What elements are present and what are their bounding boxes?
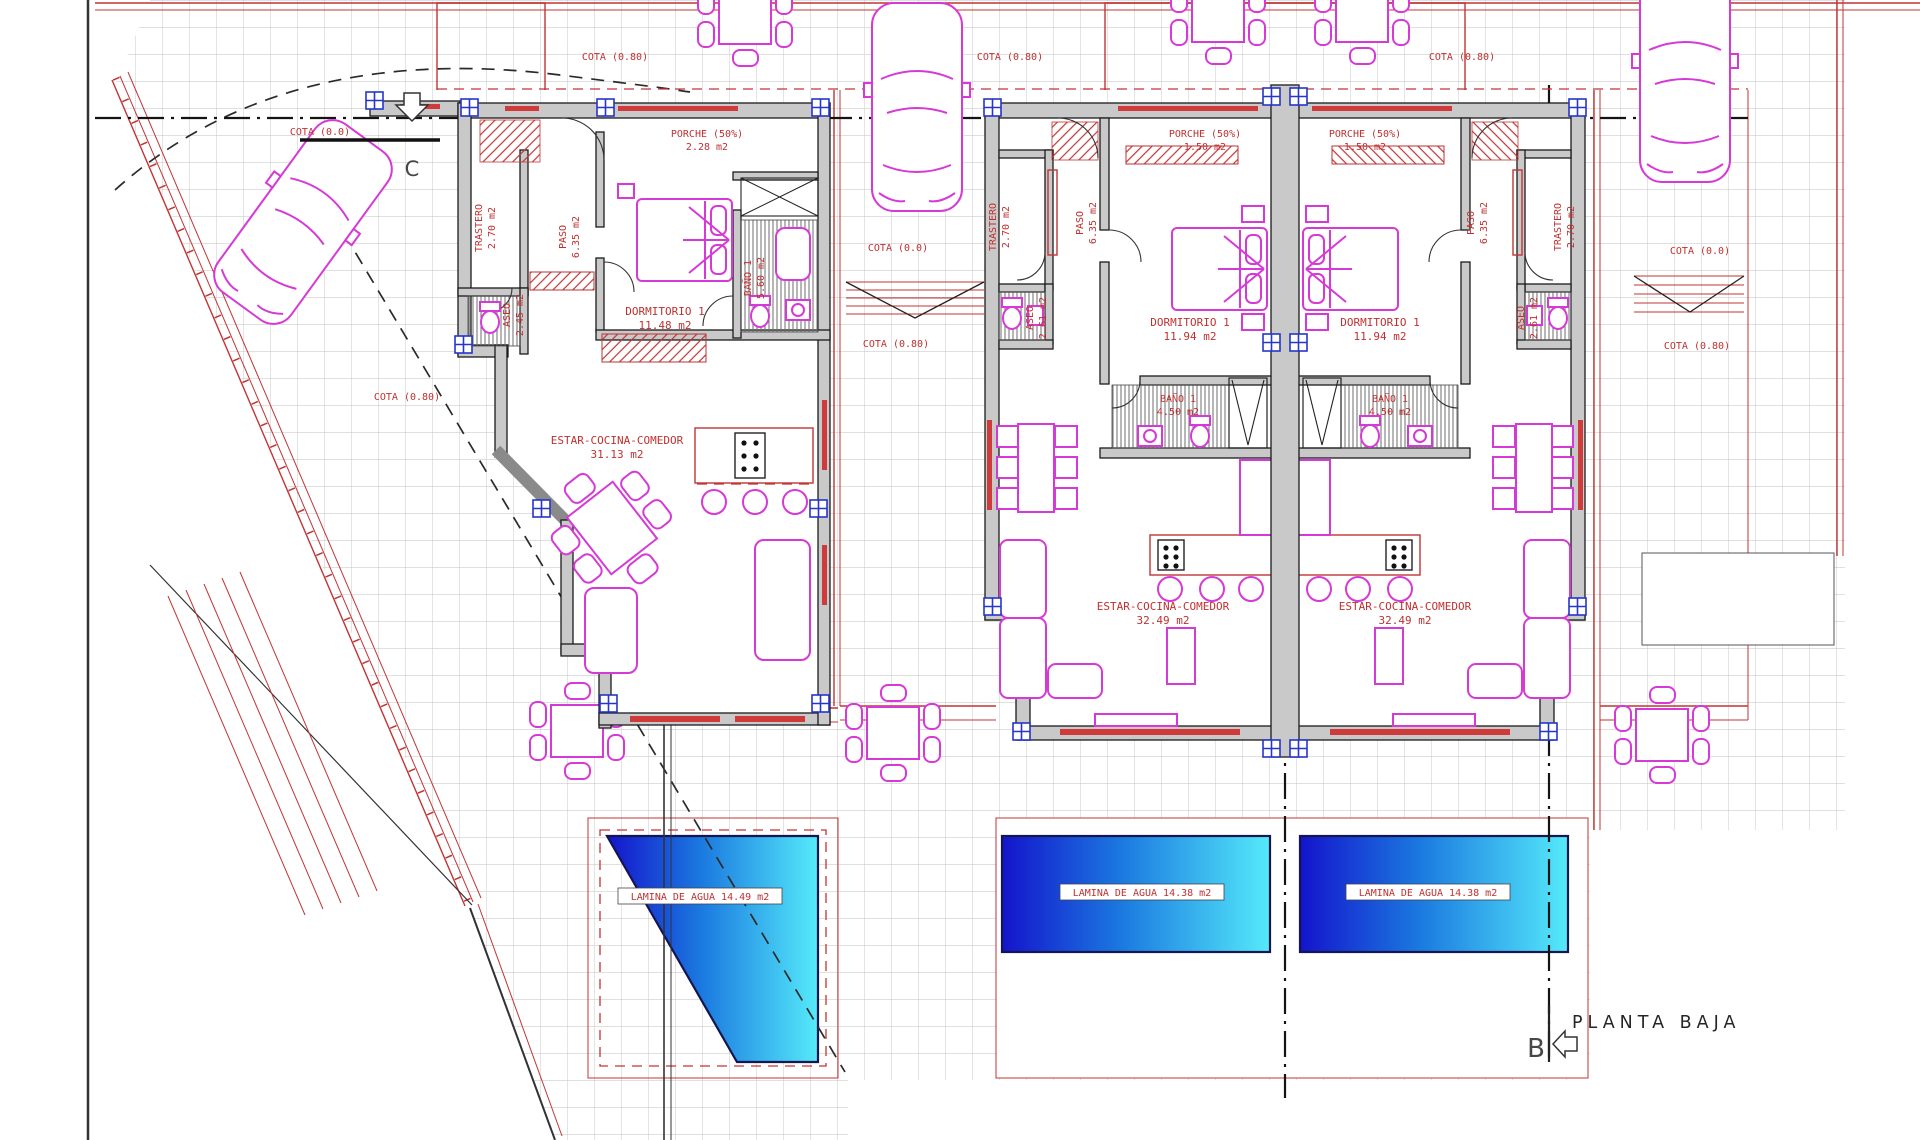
room-dormitorio-2-area: 11.94 m2 (1164, 330, 1217, 343)
room-dormitorio-2: DORMITORIO 1 (1150, 316, 1229, 329)
pool-label-2: LAMINA DE AGUA 14.38 m2 (1060, 884, 1224, 900)
room-estar-3-area: 32.49 m2 (1379, 614, 1432, 627)
room-bano-2-area: 4.50 m2 (1157, 407, 1199, 418)
bano-toilet (750, 296, 770, 327)
section-letter-c: C (405, 157, 420, 181)
svg-text:LAMINA DE AGUA 14.49 m2: LAMINA DE AGUA 14.49 m2 (631, 892, 769, 903)
wardrobe (602, 334, 706, 362)
cota-left-garden: COTA (0.80) (374, 392, 440, 403)
porche-label-1: PORCHE (50%) (671, 129, 743, 140)
aseo-toilet (480, 302, 500, 333)
plan-title: PLANTA BAJA (1572, 1013, 1740, 1033)
room-estar-2: ESTAR-COCINA-COMEDOR (1097, 600, 1230, 613)
room-paso-3-area: 6.35 m2 (1479, 202, 1490, 244)
room-bano-1-area: 5.60 m2 (756, 257, 767, 299)
room-trastero-1: TRASTERO (474, 204, 485, 252)
pool-label-3: LAMINA DE AGUA 14.38 m2 (1346, 884, 1510, 900)
room-aseo-2-area: 2.61 m2 (1038, 297, 1049, 339)
sofa-2 (585, 588, 637, 673)
cota-left-street: COTA (0.0) (290, 127, 350, 138)
room-trastero-1-area: 2.70 m2 (487, 207, 498, 249)
room-paso-2: PASO (1075, 211, 1086, 235)
room-bano-1: BAÑO 1 (741, 260, 754, 296)
room-bano-3: BAÑO 1 (1372, 392, 1408, 405)
sofa (755, 540, 810, 660)
room-trastero-2: TRASTERO (988, 203, 999, 251)
pool-label-1: LAMINA DE AGUA 14.49 m2 (618, 888, 782, 904)
porche-label-3: PORCHE (50%) (1329, 129, 1401, 140)
floor-plan-page: COTA (0.0) COTA (0.80) COTA (0.80) COTA … (0, 0, 1920, 1140)
room-paso-3: PASO (1466, 211, 1477, 235)
cota-right-garden: COTA (0.80) (1664, 341, 1730, 352)
porche-area-2: 1.50 m2 (1184, 142, 1226, 153)
cota-right-street: COTA (0.0) (1670, 246, 1730, 257)
room-aseo-2: ASEO (1025, 306, 1036, 330)
room-estar-3: ESTAR-COCINA-COMEDOR (1339, 600, 1472, 613)
floor-plan-canvas: COTA (0.0) COTA (0.80) COTA (0.80) COTA … (0, 0, 1920, 1140)
room-aseo-3-area: 2.61 m2 (1529, 297, 1540, 339)
room-trastero-3-area: 2.70 m2 (1566, 206, 1577, 248)
room-dormitorio-3-area: 11.94 m2 (1354, 330, 1407, 343)
svg-text:LAMINA DE AGUA 14.38 m2: LAMINA DE AGUA 14.38 m2 (1073, 888, 1211, 899)
cota-top-2: COTA (0.80) (977, 52, 1043, 63)
room-trastero-2-area: 2.70 m2 (1001, 206, 1012, 248)
room-bano-2: BAÑO 1 (1160, 392, 1196, 405)
room-trastero-3: TRASTERO (1553, 203, 1564, 251)
porche-label-2: PORCHE (50%) (1169, 129, 1241, 140)
legend-box (1642, 553, 1834, 645)
room-paso-1: PASO (558, 225, 569, 249)
cota-top-1: COTA (0.80) (582, 52, 648, 63)
room-aseo-1: ASEO (502, 303, 513, 327)
house-2 (984, 99, 1272, 740)
car-middle (864, 3, 970, 211)
car-right (1632, 0, 1738, 182)
room-aseo-1-area: 2.45 m2 (515, 294, 526, 336)
room-dormitorio-1-area: 11.48 m2 (639, 319, 692, 332)
bano-sink (786, 300, 810, 320)
bathtub (776, 228, 810, 280)
hall-closet (530, 272, 594, 290)
svg-text:LAMINA DE AGUA 14.38 m2: LAMINA DE AGUA 14.38 m2 (1359, 888, 1497, 899)
cota-top-3: COTA (0.80) (1429, 52, 1495, 63)
bed (637, 199, 732, 281)
room-estar-2-area: 32.49 m2 (1137, 614, 1190, 627)
section-letter-b: B (1527, 1034, 1545, 1064)
cota-mid-street: COTA (0.0) (868, 243, 928, 254)
porche-area-1: 2.28 m2 (686, 142, 728, 153)
room-bano-3-area: 4.50 m2 (1369, 407, 1411, 418)
house-3 (1298, 99, 1586, 740)
room-dormitorio-1: DORMITORIO 1 (625, 305, 704, 318)
entry-steps (480, 120, 540, 162)
room-aseo-3: ASEO (1516, 306, 1527, 330)
cota-mid-garden: COTA (0.80) (863, 339, 929, 350)
room-paso-2-area: 6.35 m2 (1088, 202, 1099, 244)
room-estar-1: ESTAR-COCINA-COMEDOR (551, 434, 684, 447)
room-estar-1-area: 31.13 m2 (591, 448, 644, 461)
room-paso-1-area: 6.35 m2 (571, 216, 582, 258)
room-dormitorio-3: DORMITORIO 1 (1340, 316, 1419, 329)
porche-area-3: 1.50 m2 (1344, 142, 1386, 153)
